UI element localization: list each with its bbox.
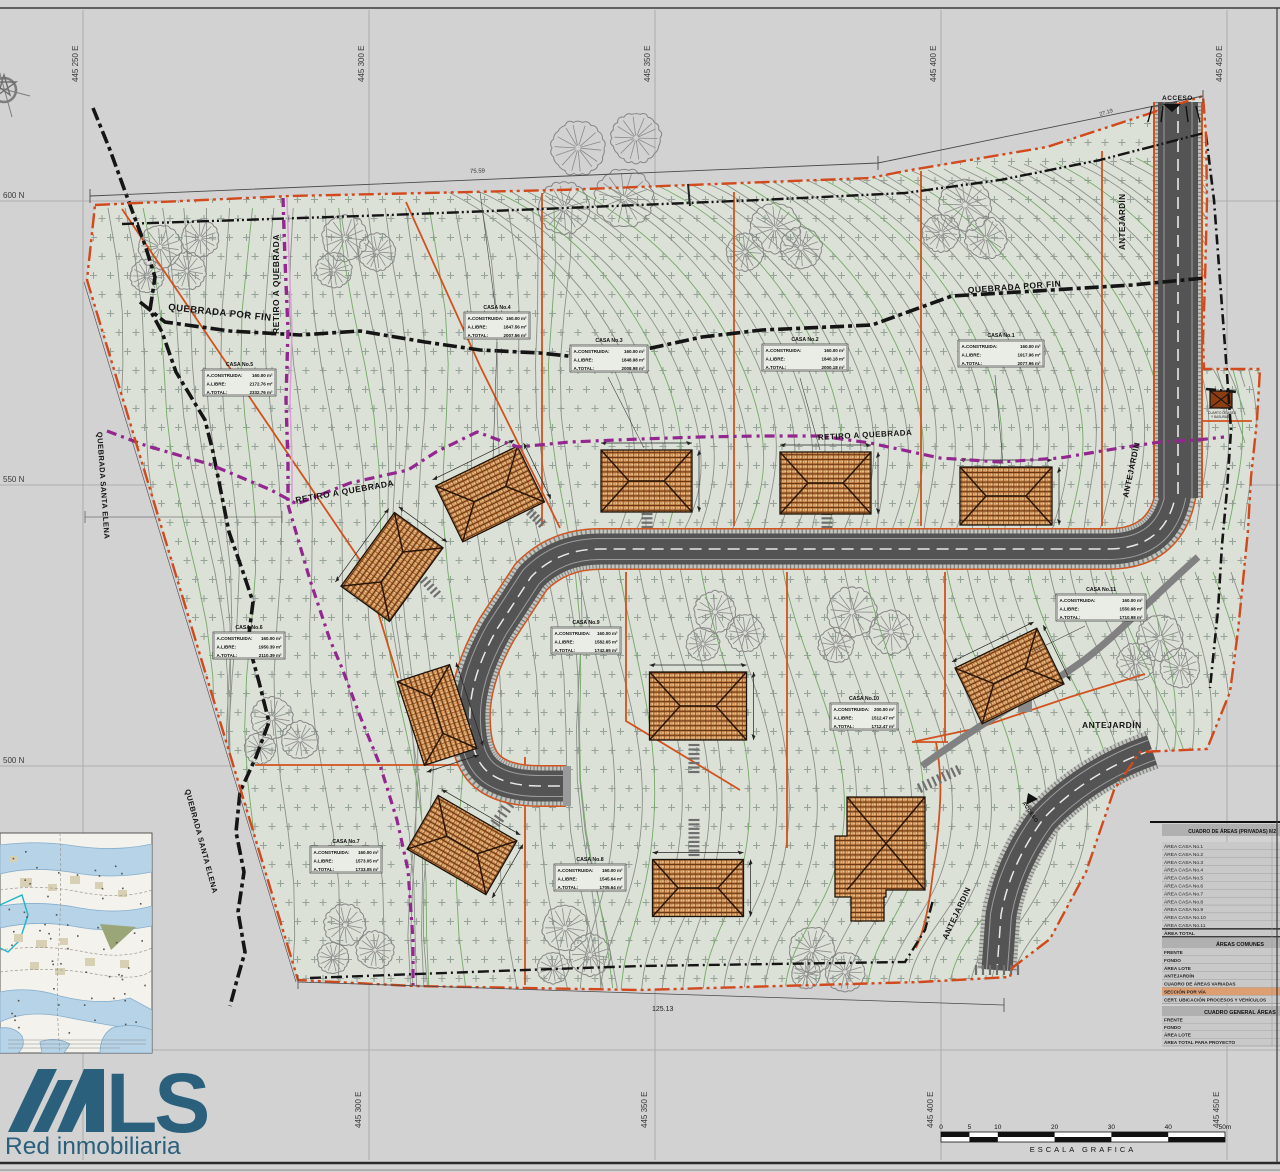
svg-text:A.CONSTRUIDA:: A.CONSTRUIDA:: [574, 349, 610, 354]
svg-text:1917.96 m²: 1917.96 m²: [1017, 353, 1041, 358]
svg-text:A.TOTAL:: A.TOTAL:: [766, 365, 787, 370]
svg-text:550 N: 550 N: [3, 475, 25, 484]
svg-text:A.CONSTRUIDA:: A.CONSTRUIDA:: [314, 850, 350, 855]
svg-text:ÁREA CASA No.11: ÁREA CASA No.11: [1164, 922, 1206, 929]
svg-text:1847.56 m²: 1847.56 m²: [503, 325, 527, 330]
svg-text:1705.64 m²: 1705.64 m²: [599, 885, 623, 890]
svg-text:445 400 E: 445 400 E: [926, 1092, 935, 1128]
svg-text:A.CONSTRUIDA:: A.CONSTRUIDA:: [766, 348, 802, 353]
svg-text:CERT. UBICACIÓN PROCESOS Y VEH: CERT. UBICACIÓN PROCESOS Y VEHÍCULOS: [1164, 995, 1266, 1002]
svg-text:ESCALA GRAFICA: ESCALA GRAFICA: [1030, 1145, 1137, 1154]
svg-text:2110.39 m²: 2110.39 m²: [259, 653, 282, 658]
svg-text:A.LIBRE:: A.LIBRE:: [217, 645, 237, 650]
svg-text:CASA No.7: CASA No.7: [332, 839, 359, 845]
svg-text:200.00 m²: 200.00 m²: [874, 707, 895, 712]
svg-text:ÁREA LOTE: ÁREA LOTE: [1164, 965, 1191, 971]
svg-text:160.00 m²: 160.00 m²: [506, 316, 527, 321]
svg-text:ÁREA CASA No.9: ÁREA CASA No.9: [1164, 906, 1203, 913]
svg-text:A.LIBRE:: A.LIBRE:: [314, 859, 334, 864]
svg-text:ÁREA TOTAL: ÁREA TOTAL: [1164, 930, 1195, 937]
svg-text:1848.98 m²: 1848.98 m²: [621, 358, 645, 363]
svg-text:ÁREA CASA No.4: ÁREA CASA No.4: [1164, 867, 1203, 874]
svg-text:CUADRO DE ÁREAS (PRIVADAS) M2: CUADRO DE ÁREAS (PRIVADAS) M2: [1188, 828, 1276, 835]
svg-text:445 350 E: 445 350 E: [640, 1092, 649, 1128]
svg-text:ÁREA CASA No.5: ÁREA CASA No.5: [1164, 875, 1203, 882]
svg-text:CASA No.3: CASA No.3: [595, 338, 622, 344]
svg-text:CUADRO GENERAL ÁREAS: CUADRO GENERAL ÁREAS: [1204, 1009, 1276, 1016]
svg-text:30: 30: [1108, 1124, 1116, 1131]
svg-text:ÁREAS COMUNES: ÁREAS COMUNES: [1216, 941, 1264, 948]
svg-text:0: 0: [939, 1124, 943, 1131]
svg-text:75.59: 75.59: [470, 168, 486, 175]
svg-text:ÁREA CASA No.2: ÁREA CASA No.2: [1164, 851, 1203, 858]
svg-text:A.LIBRE:: A.LIBRE:: [962, 353, 982, 358]
svg-text:A.TOTAL:: A.TOTAL:: [558, 885, 579, 890]
svg-text:CASA No.1: CASA No.1: [987, 333, 1014, 339]
svg-text:20: 20: [1051, 1124, 1059, 1131]
svg-text:FRENTE: FRENTE: [1164, 950, 1183, 955]
svg-text:A.CONSTRUIDA:: A.CONSTRUIDA:: [558, 868, 594, 873]
svg-text:A.TOTAL:: A.TOTAL:: [217, 653, 238, 658]
svg-text:Red inmobiliaria: Red inmobiliaria: [5, 1133, 181, 1160]
svg-text:CASA No.5: CASA No.5: [226, 362, 253, 368]
svg-text:A.TOTAL:: A.TOTAL:: [1060, 615, 1081, 620]
svg-text:500 N: 500 N: [3, 756, 25, 765]
svg-text:A.CONSTRUIDA:: A.CONSTRUIDA:: [1060, 598, 1096, 603]
svg-text:445 300 E: 445 300 E: [354, 1092, 363, 1128]
svg-text:10: 10: [994, 1124, 1002, 1131]
svg-text:125.13: 125.13: [652, 1006, 674, 1013]
svg-text:160.00 m²: 160.00 m²: [1122, 598, 1143, 603]
svg-text:1550.98 m²: 1550.98 m²: [1119, 607, 1143, 612]
svg-text:160.00 m²: 160.00 m²: [358, 850, 379, 855]
svg-text:A.CONSTRUIDA:: A.CONSTRUIDA:: [962, 344, 998, 349]
svg-text:A.LIBRE:: A.LIBRE:: [766, 357, 786, 362]
svg-text:160.00 m²: 160.00 m²: [624, 349, 645, 354]
svg-text:ÁREA CASA No.3: ÁREA CASA No.3: [1164, 859, 1203, 866]
svg-text:CUADRO DE ÁREAS VARIADAS: CUADRO DE ÁREAS VARIADAS: [1164, 981, 1236, 987]
svg-text:1545.64 m²: 1545.64 m²: [599, 877, 623, 882]
svg-text:160.00 m²: 160.00 m²: [597, 631, 618, 636]
svg-text:2008.98 m²: 2008.98 m²: [621, 366, 645, 371]
svg-text:Y BASURAS: Y BASURAS: [1211, 415, 1229, 419]
svg-text:A.TOTAL:: A.TOTAL:: [468, 333, 489, 338]
svg-text:160.00 m²: 160.00 m²: [824, 348, 845, 353]
svg-text:A.TOTAL:: A.TOTAL:: [574, 366, 595, 371]
svg-text:A.TOTAL:: A.TOTAL:: [834, 724, 855, 729]
svg-text:160.00 m²: 160.00 m²: [252, 373, 273, 378]
svg-text:445 400 E: 445 400 E: [929, 46, 938, 82]
svg-text:445 250 E: 445 250 E: [71, 46, 80, 82]
svg-text:ACCESO: ACCESO: [1162, 95, 1193, 102]
svg-text:ÁREA TOTAL PARA PROYECTO: ÁREA TOTAL PARA PROYECTO: [1164, 1039, 1235, 1045]
svg-text:FRENTE: FRENTE: [1164, 1018, 1183, 1023]
svg-text:1710.98 m²: 1710.98 m²: [1119, 615, 1143, 620]
svg-text:CASA No.10: CASA No.10: [849, 696, 879, 702]
svg-text:445 300 E: 445 300 E: [357, 46, 366, 82]
svg-text:A.LIBRE:: A.LIBRE:: [555, 640, 575, 645]
svg-text:A.CONSTRUIDA:: A.CONSTRUIDA:: [834, 707, 870, 712]
svg-text:ÁREA CASA No.1: ÁREA CASA No.1: [1164, 843, 1203, 850]
svg-text:1582.65 m²: 1582.65 m²: [594, 640, 618, 645]
svg-text:1950.39 m²: 1950.39 m²: [258, 645, 282, 650]
svg-text:600 N: 600 N: [3, 191, 25, 200]
svg-text:1742.65 m²: 1742.65 m²: [594, 648, 618, 653]
svg-text:A.CONSTRUIDA:: A.CONSTRUIDA:: [555, 631, 591, 636]
svg-text:2172.76 m²: 2172.76 m²: [249, 382, 273, 387]
svg-text:RETIRO A QUEBRADA: RETIRO A QUEBRADA: [271, 234, 281, 334]
svg-text:A.LIBRE:: A.LIBRE:: [834, 716, 854, 721]
svg-text:A.TOTAL:: A.TOTAL:: [555, 648, 576, 653]
svg-text:1573.05 m²: 1573.05 m²: [355, 859, 379, 864]
svg-text:40: 40: [1165, 1124, 1173, 1131]
svg-text:ÁREA CASA No.10: ÁREA CASA No.10: [1164, 914, 1206, 921]
svg-text:CASA No.4: CASA No.4: [483, 305, 510, 311]
svg-text:A.TOTAL:: A.TOTAL:: [207, 390, 228, 395]
svg-text:160.00 m²: 160.00 m²: [602, 868, 623, 873]
svg-text:CASA No.8: CASA No.8: [576, 857, 603, 863]
svg-text:160.00 m²: 160.00 m²: [261, 636, 282, 641]
svg-text:1840.18 m²: 1840.18 m²: [821, 357, 845, 362]
svg-text:CASA No.6: CASA No.6: [235, 625, 262, 631]
svg-text:FONDO: FONDO: [1164, 958, 1181, 963]
svg-text:445 450 E: 445 450 E: [1215, 46, 1224, 82]
svg-text:A.LIBRE:: A.LIBRE:: [558, 877, 578, 882]
svg-text:ÁREA CASA No.8: ÁREA CASA No.8: [1164, 898, 1203, 905]
svg-text:2007.56 m²: 2007.56 m²: [503, 333, 527, 338]
svg-text:1733.05 m²: 1733.05 m²: [355, 867, 379, 872]
svg-text:ÁREA LOTE: ÁREA LOTE: [1164, 1032, 1191, 1038]
svg-text:445 350 E: 445 350 E: [643, 46, 652, 82]
svg-text:A.LIBRE:: A.LIBRE:: [207, 382, 227, 387]
svg-text:ANTEJARDÍN: ANTEJARDÍN: [1082, 720, 1142, 730]
svg-text:160.00 m²: 160.00 m²: [1020, 344, 1041, 349]
svg-text:2077.96 m²: 2077.96 m²: [1017, 361, 1041, 366]
svg-text:CASA No.9: CASA No.9: [572, 620, 599, 626]
svg-text:A.TOTAL:: A.TOTAL:: [962, 361, 983, 366]
svg-text:A.LIBRE:: A.LIBRE:: [1060, 607, 1080, 612]
svg-text:CASA No.11: CASA No.11: [1086, 587, 1116, 593]
svg-text:1712.47 m²: 1712.47 m²: [871, 724, 895, 729]
svg-text:ÁREA CASA No.7: ÁREA CASA No.7: [1164, 890, 1203, 897]
svg-text:ANTEJARDÍN: ANTEJARDÍN: [1118, 193, 1127, 250]
svg-text:ÁREA CASA No.6: ÁREA CASA No.6: [1164, 883, 1203, 890]
svg-text:A.LIBRE:: A.LIBRE:: [468, 325, 488, 330]
svg-text:CASA No.2: CASA No.2: [791, 337, 818, 343]
svg-text:2332.76 m²: 2332.76 m²: [249, 390, 273, 395]
svg-text:A.CONSTRUIDA:: A.CONSTRUIDA:: [468, 316, 504, 321]
svg-text:1512.47 m²: 1512.47 m²: [871, 716, 895, 721]
svg-text:FONDO: FONDO: [1164, 1025, 1181, 1030]
svg-text:445 450 E: 445 450 E: [1212, 1092, 1221, 1128]
svg-text:50m: 50m: [1219, 1124, 1232, 1131]
svg-text:A.TOTAL:: A.TOTAL:: [314, 867, 335, 872]
svg-text:A.CONSTRUIDA:: A.CONSTRUIDA:: [217, 636, 253, 641]
svg-text:A.LIBRE:: A.LIBRE:: [574, 358, 594, 363]
svg-text:ANTEJARDÍN: ANTEJARDÍN: [1164, 972, 1195, 979]
svg-text:A.CONSTRUIDA:: A.CONSTRUIDA:: [207, 373, 243, 378]
svg-text:5: 5: [968, 1124, 972, 1131]
svg-text:2000.18 m²: 2000.18 m²: [821, 365, 845, 370]
svg-text:SECCIÓN POR VÍA: SECCIÓN POR VÍA: [1164, 988, 1207, 995]
